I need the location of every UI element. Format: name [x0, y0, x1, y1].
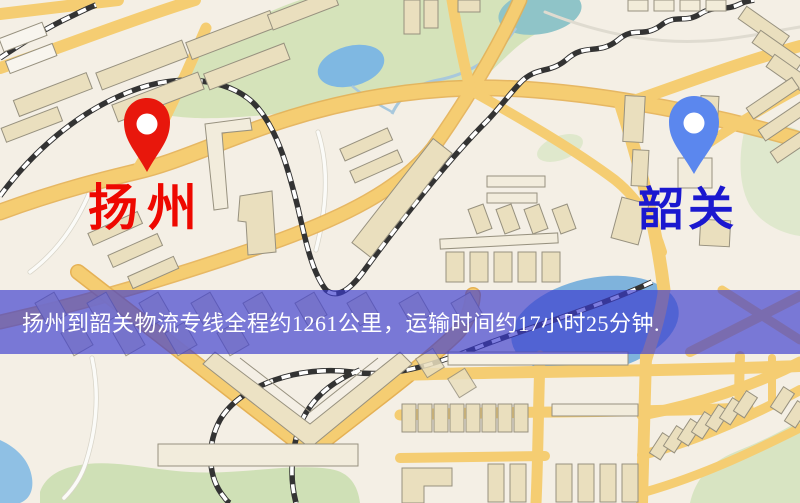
map-image: 扬州 韶关 扬州到韶关物流专线全程约1261公里，运输时间约17小时25分钟.	[0, 0, 800, 503]
route-banner-text: 扬州到韶关物流专线全程约1261公里，运输时间约17小时25分钟.	[22, 306, 660, 338]
map-canvas	[0, 0, 800, 503]
origin-label: 扬州	[88, 168, 206, 240]
route-banner: 扬州到韶关物流专线全程约1261公里，运输时间约17小时25分钟.	[0, 290, 800, 354]
destination-label: 韶关	[638, 173, 738, 239]
